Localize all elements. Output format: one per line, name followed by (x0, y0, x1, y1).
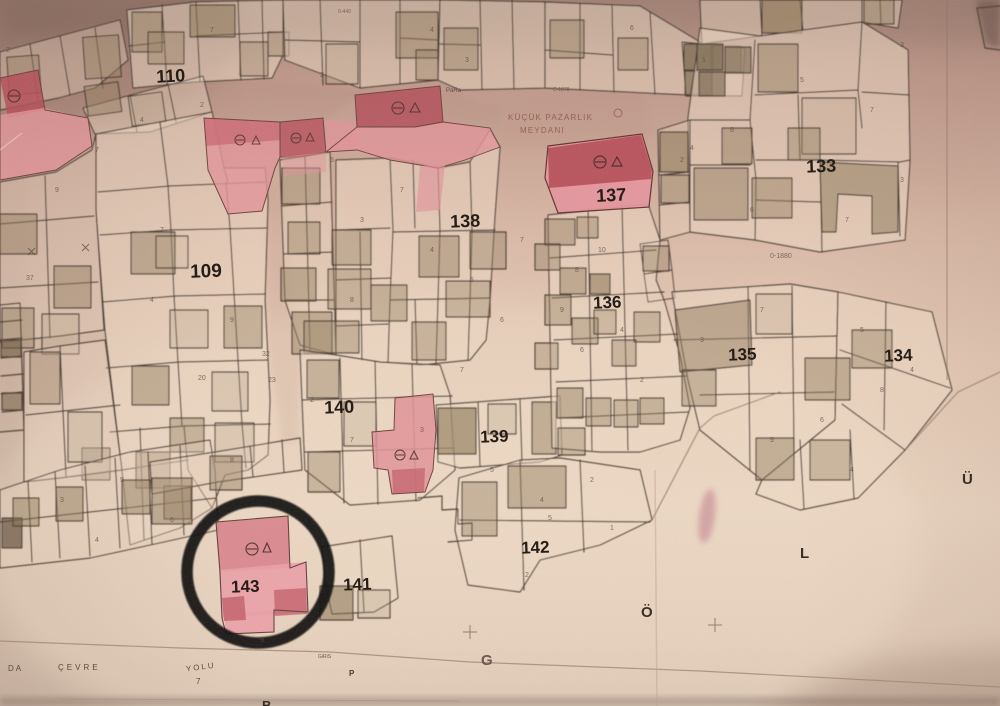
svg-text:109: 109 (190, 261, 222, 283)
svg-text:110: 110 (156, 65, 186, 86)
svg-text:PaRa: PaRa (446, 88, 462, 94)
svg-text:140: 140 (324, 397, 355, 418)
svg-text:138: 138 (450, 211, 481, 232)
svg-text:P: P (349, 669, 355, 678)
svg-text:142: 142 (521, 538, 550, 558)
svg-text:DA: DA (8, 664, 23, 673)
svg-text:7: 7 (196, 677, 201, 686)
svg-text:Ü: Ü (962, 471, 973, 488)
svg-text:GiRiS: GiRiS (318, 654, 332, 660)
svg-text:134: 134 (884, 346, 914, 366)
svg-text:141: 141 (343, 575, 372, 595)
svg-text:B: B (262, 698, 271, 706)
svg-text:143: 143 (231, 577, 260, 597)
svg-text:139: 139 (480, 427, 509, 447)
svg-text:L: L (800, 545, 809, 562)
svg-text:G: G (481, 652, 493, 669)
svg-text:136: 136 (593, 293, 622, 313)
svg-text:ÇEVRE: ÇEVRE (58, 663, 101, 672)
svg-text:135: 135 (728, 345, 757, 365)
svg-text:137: 137 (596, 184, 627, 206)
svg-text:133: 133 (806, 156, 837, 177)
svg-text:Ö: Ö (641, 604, 653, 621)
